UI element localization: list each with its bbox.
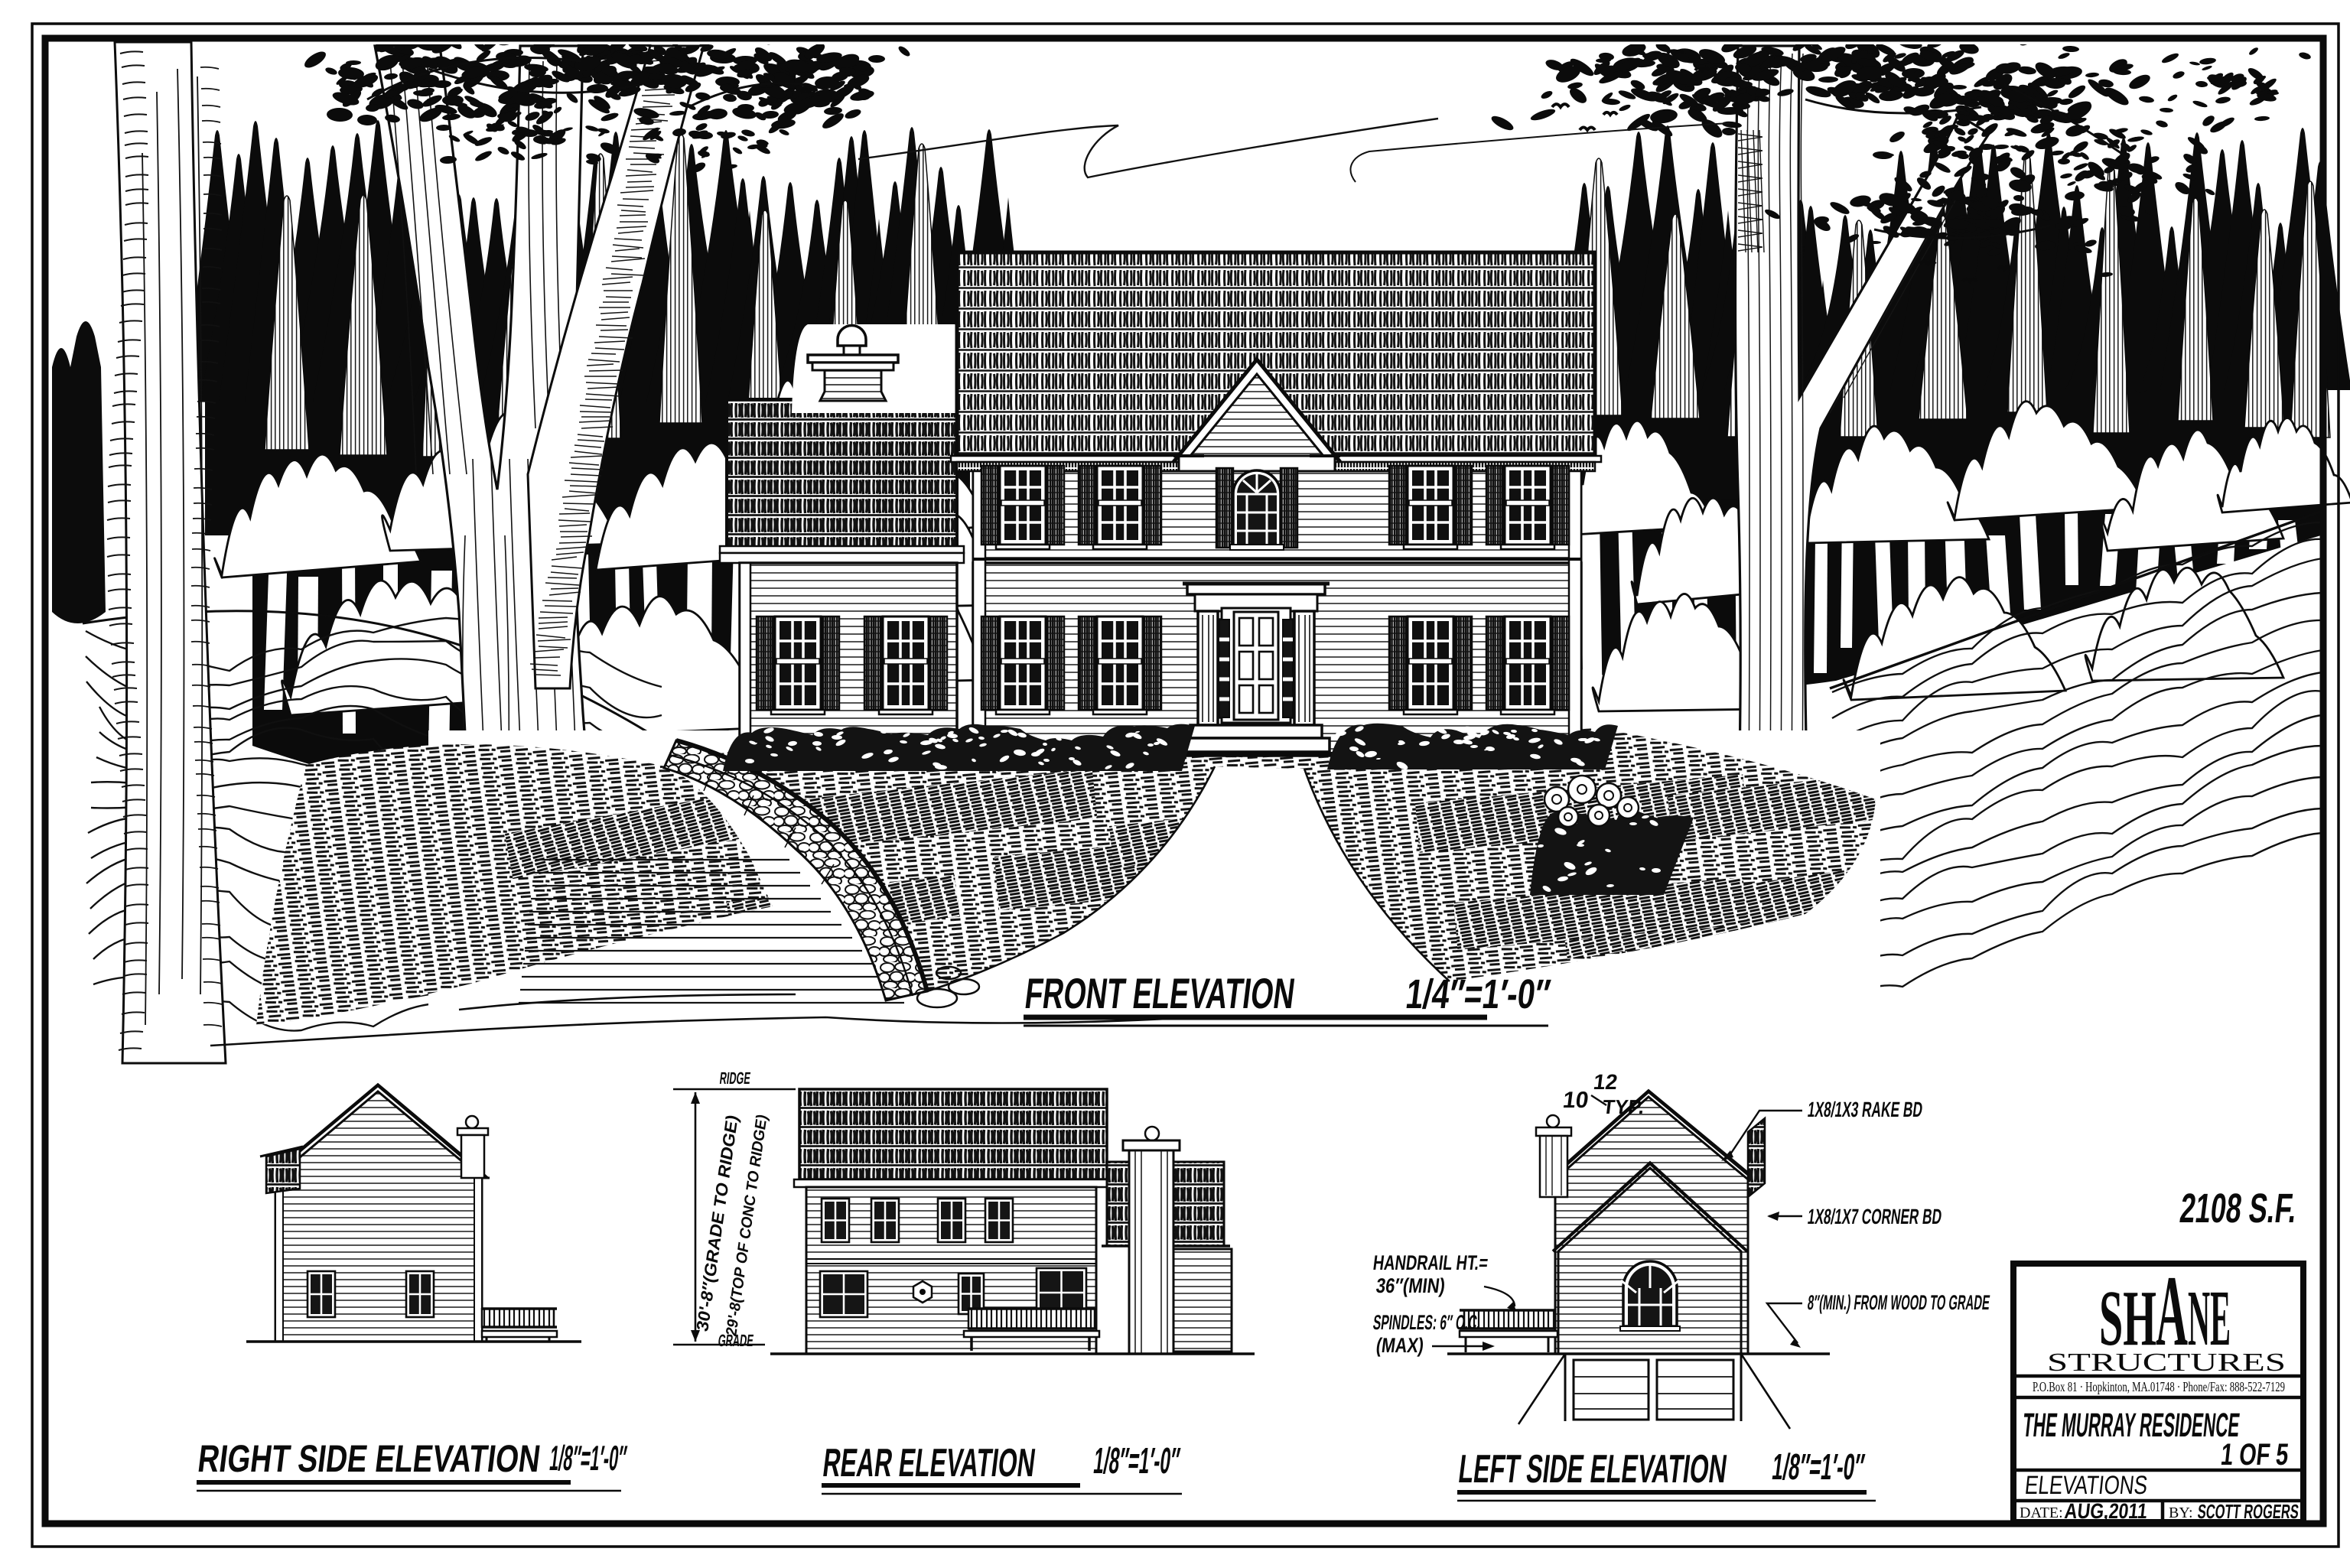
svg-text:1/4″=1′-0″: 1/4″=1′-0″ — [1404, 971, 1553, 1017]
svg-text:LEFT SIDE ELEVATION: LEFT SIDE ELEVATION — [1457, 1447, 1730, 1492]
svg-text:STRUCTURES: STRUCTURES — [2047, 1348, 2286, 1377]
svg-text:12: 12 — [1592, 1070, 1619, 1094]
svg-text:1X8/1X7 CORNER BD: 1X8/1X7 CORNER BD — [1806, 1205, 1943, 1228]
svg-text:RIDGE: RIDGE — [718, 1069, 751, 1088]
svg-text:1 OF 5: 1 OF 5 — [2219, 1438, 2290, 1472]
svg-text:HANDRAIL HT.=: HANDRAIL HT.= — [1372, 1251, 1489, 1274]
svg-text:RIGHT SIDE ELEVATION: RIGHT SIDE ELEVATION — [196, 1437, 543, 1480]
svg-text:ELEVATIONS: ELEVATIONS — [2023, 1471, 2149, 1500]
svg-text:FRONT ELEVATION: FRONT ELEVATION — [1023, 969, 1298, 1017]
svg-text:BY:: BY: — [2169, 1505, 2193, 1521]
svg-text:REAR ELEVATION: REAR ELEVATION — [821, 1441, 1038, 1485]
svg-text:8″(MIN.) FROM WOOD TO GRADE: 8″(MIN.) FROM WOOD TO GRADE — [1806, 1290, 1991, 1314]
svg-text:1/8″=1′-0″: 1/8″=1′-0″ — [548, 1438, 629, 1478]
svg-text:10: 10 — [1561, 1088, 1590, 1113]
svg-text:(MAX): (MAX) — [1375, 1333, 1425, 1357]
svg-text:P.O.Box 81 · Hopkinton, MA.017: P.O.Box 81 · Hopkinton, MA.01748 · Phone… — [2033, 1379, 2285, 1394]
svg-text:TYP.: TYP. — [1601, 1095, 1645, 1118]
svg-text:2108 S.F.: 2108 S.F. — [2178, 1186, 2300, 1231]
svg-text:1/8″=1′-0″: 1/8″=1′-0″ — [1092, 1440, 1183, 1482]
svg-text:1/8″=1′-0″: 1/8″=1′-0″ — [1770, 1446, 1867, 1488]
svg-text:36″(MIN): 36″(MIN) — [1375, 1274, 1447, 1297]
svg-text:1X8/1X3 RAKE BD: 1X8/1X3 RAKE BD — [1806, 1098, 1924, 1121]
svg-text:SPINDLES: 6″ O.C.: SPINDLES: 6″ O.C. — [1372, 1310, 1482, 1334]
svg-text:SCOTT ROGERS: SCOTT ROGERS — [2196, 1500, 2300, 1523]
svg-text:AUG,2011: AUG,2011 — [2063, 1499, 2148, 1523]
svg-text:THE MURRAY RESIDENCE: THE MURRAY RESIDENCE — [2021, 1407, 2241, 1444]
svg-text:DATE:: DATE: — [2020, 1505, 2063, 1521]
